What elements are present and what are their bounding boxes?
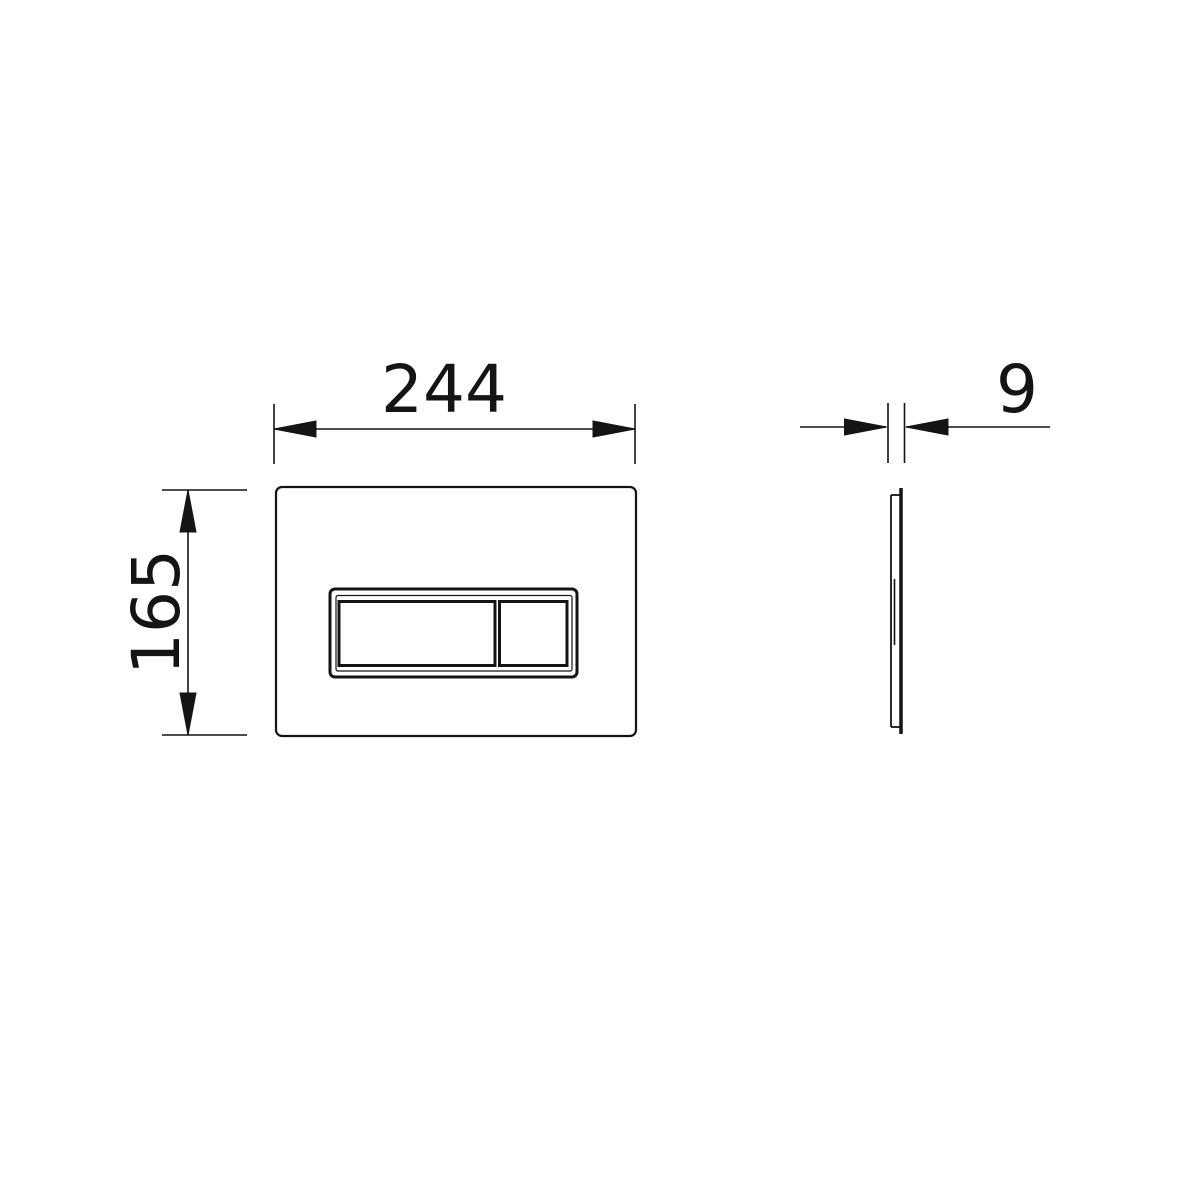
button-recess-inner-edge bbox=[336, 596, 572, 672]
small-flush-button bbox=[500, 602, 568, 666]
thickness-dimension: 9 bbox=[800, 351, 1050, 463]
height-dimension: 165 bbox=[118, 490, 247, 735]
drawing-canvas: 244 165 9 bbox=[0, 0, 1200, 1200]
thickness-arrowhead-right-icon bbox=[906, 419, 948, 435]
large-flush-button bbox=[339, 602, 495, 666]
thickness-arrowhead-left-icon bbox=[845, 419, 887, 435]
thickness-dimension-value: 9 bbox=[996, 351, 1038, 428]
side-view bbox=[891, 488, 901, 734]
height-arrowhead-bottom-icon bbox=[180, 693, 196, 735]
front-view bbox=[276, 487, 636, 736]
width-dimension: 244 bbox=[274, 351, 635, 464]
width-dimension-value: 244 bbox=[381, 351, 507, 428]
width-arrowhead-left-icon bbox=[274, 421, 316, 437]
technical-drawing: 244 165 9 bbox=[0, 0, 1200, 1200]
width-arrowhead-right-icon bbox=[593, 421, 635, 437]
height-dimension-value: 165 bbox=[118, 549, 195, 675]
height-arrowhead-top-icon bbox=[180, 490, 196, 532]
